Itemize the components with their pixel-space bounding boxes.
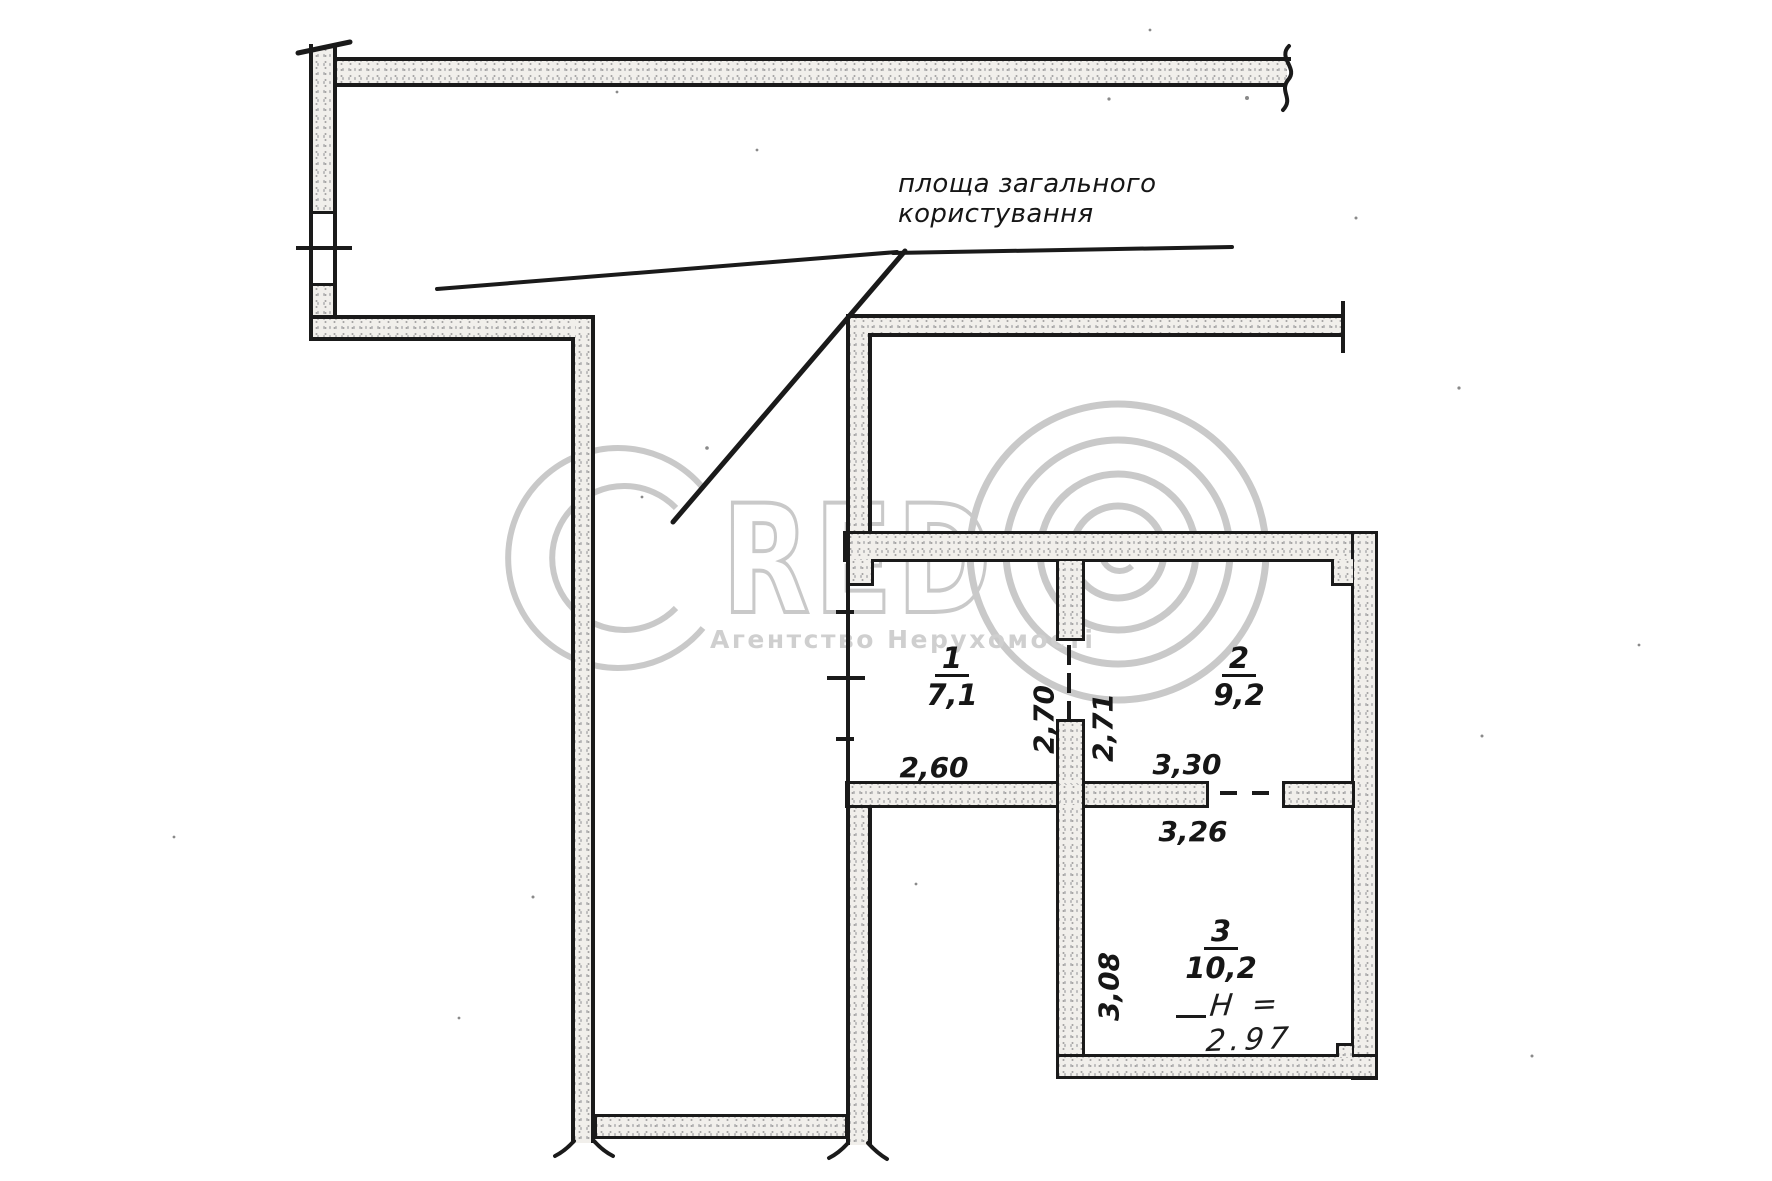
dim-room3-width: 3,26 xyxy=(1151,815,1235,848)
room3-number: 3 xyxy=(1204,916,1238,950)
room2-label: 2 9,2 xyxy=(1195,643,1283,710)
wall-second-left-top-line xyxy=(309,315,595,319)
room1-label: 1 7,1 xyxy=(908,643,996,710)
dim-door-left: 2,70 xyxy=(1028,677,1061,763)
door2-dash-1 xyxy=(1220,791,1237,795)
corridor-right-wall-hatch-lower xyxy=(850,808,868,1145)
corridor-right-wall-hatch-upper xyxy=(850,318,868,531)
ceiling-height-note: Н = 2.97 xyxy=(1204,983,1381,1059)
wall-second-right-bottom-line xyxy=(868,333,1343,337)
wall-second-right-end-tick xyxy=(1341,301,1345,353)
corridor-left-wall-hatch xyxy=(575,319,591,1143)
credo-watermark: RED Агентство Нерухомості xyxy=(0,0,1772,1181)
letter-c-arcs xyxy=(508,448,703,668)
dim-room3-depth: 3,08 xyxy=(1093,944,1126,1030)
door2-dash-2 xyxy=(1252,791,1269,795)
wall-second-left-hatch xyxy=(312,319,592,337)
wall-end-flare-1 xyxy=(555,1141,574,1156)
door1-dash-2 xyxy=(1067,673,1071,693)
mid-wall-right xyxy=(1282,781,1355,808)
leader-underline xyxy=(893,247,1232,253)
room3-area: 10,2 xyxy=(1177,953,1265,983)
corridor-left-wall-outer-line xyxy=(571,337,575,1143)
room1-number: 1 xyxy=(935,643,969,677)
wall-second-right-top-line xyxy=(846,314,1343,318)
wall-top-inner-line xyxy=(337,83,1287,87)
room1-wall-tick-top xyxy=(836,610,854,614)
room2-number: 2 xyxy=(1222,643,1256,677)
plan-linework xyxy=(0,0,1772,1181)
dim-room1-width: 2,60 xyxy=(893,751,975,784)
floor-plan-scan: RED Агентство Нерухомості xyxy=(0,0,1772,1181)
room1-wall-tick-mid xyxy=(827,676,865,680)
wall-top-outer-line xyxy=(333,57,1291,61)
room1-wall-tick-bottom xyxy=(836,737,854,741)
wall-end-flare-3 xyxy=(829,1143,848,1158)
dim-room2-width: 3,30 xyxy=(1145,748,1229,781)
height-note-dash xyxy=(1176,1015,1206,1018)
corridor-bottom-wall xyxy=(594,1114,848,1139)
partition-stub-upper xyxy=(1056,561,1085,641)
corridor-left-wall-inner-line xyxy=(591,315,595,1143)
window-mid-tick xyxy=(296,246,352,250)
door1-dash-1 xyxy=(1067,645,1071,665)
wall-left-outer-line xyxy=(309,44,313,341)
rooms-top-wall xyxy=(843,531,1378,562)
wall-second-right-hatch xyxy=(850,318,1341,333)
partition-lower xyxy=(1056,719,1085,1079)
watermark-subtitle: Агентство Нерухомості xyxy=(710,625,1096,654)
room1-corner-pilaster xyxy=(849,559,874,586)
dim-door-right: 2,71 xyxy=(1087,685,1120,771)
mid-wall-left xyxy=(845,781,1209,808)
window-top-line xyxy=(309,211,337,214)
wall-second-left-bottom-line xyxy=(309,337,575,341)
room1-area: 7,1 xyxy=(908,680,996,710)
room2-corner-pilaster xyxy=(1331,559,1353,586)
corridor-right-wall-inner-lower xyxy=(868,806,872,1145)
common-area-label: площа загального користування xyxy=(898,169,1328,229)
room3-label: 3 10,2 xyxy=(1177,916,1265,983)
wall-end-flare-2 xyxy=(594,1141,613,1156)
door1-dash-3 xyxy=(1067,701,1071,719)
wall-left-hatch-upper xyxy=(312,47,334,211)
wall-top-hatch xyxy=(337,61,1287,83)
corridor-right-wall-line xyxy=(846,314,850,1145)
leader-line-strip xyxy=(437,252,897,289)
corridor-right-wall-inner-upper xyxy=(868,333,872,531)
room2-area: 9,2 xyxy=(1195,680,1283,710)
wall-end-flare-4 xyxy=(868,1143,887,1159)
window-bottom-line xyxy=(309,283,337,286)
wall-cross-patch xyxy=(1060,784,1081,805)
